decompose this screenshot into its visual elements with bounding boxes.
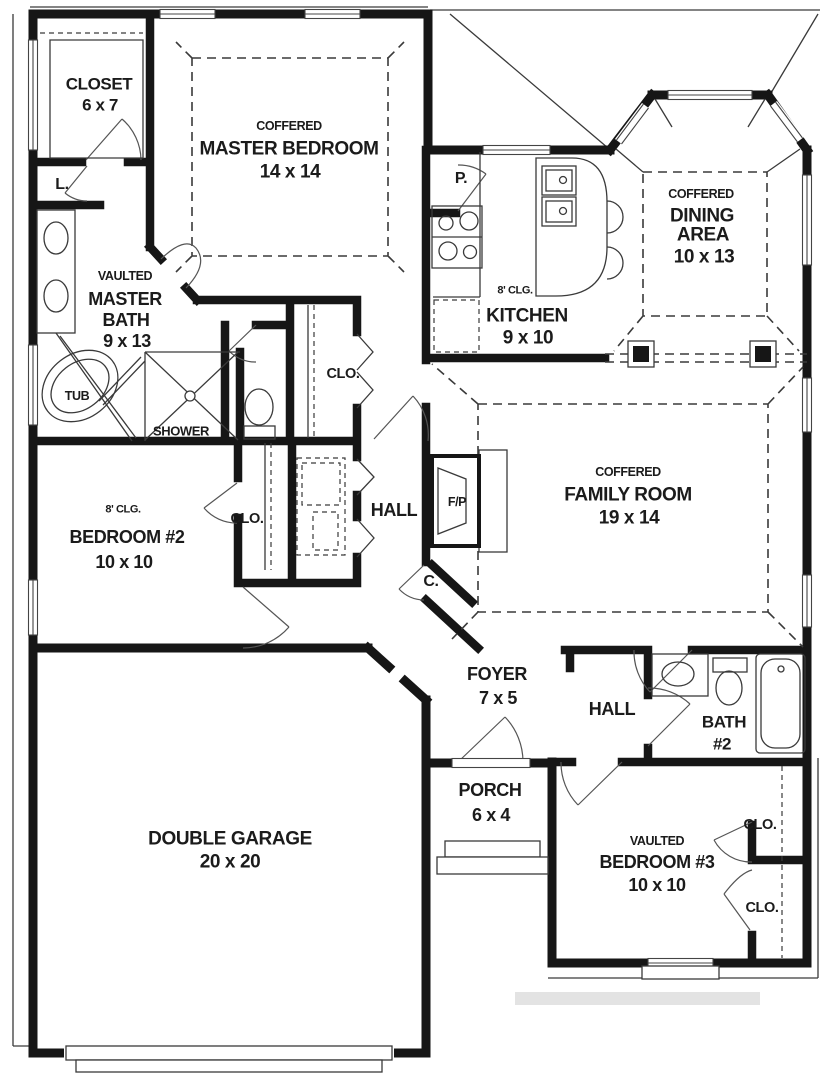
bath2-door (648, 688, 690, 746)
label-pantry: P. (455, 171, 467, 187)
label-bedroom3-ceiling: VAULTED (630, 835, 684, 848)
kitchen-island-icon (536, 158, 623, 296)
label-garage-name: DOUBLE GARAGE (148, 830, 312, 849)
colonnade (605, 341, 807, 367)
label-clo-bedroom3-top: CLO. (743, 818, 776, 833)
label-bath2-line1: BATH (702, 714, 746, 731)
front-door-swing (458, 717, 523, 762)
label-master-bedroom-name: MASTER BEDROOM (199, 140, 378, 159)
bar-stools (607, 201, 623, 279)
label-closet-dims: 6 x 7 (82, 97, 118, 114)
label-bedroom2-ceiling: 8' CLG. (105, 505, 140, 516)
label-hall-right: HALL (589, 700, 635, 718)
label-bath2-line2: #2 (713, 736, 731, 753)
label-porch-name: PORCH (458, 781, 521, 799)
label-bedroom2-name: BEDROOM #2 (69, 528, 184, 546)
bay-window (617, 102, 803, 144)
label-closet-name: CLOSET (66, 76, 133, 93)
label-bedroom2-dims: 10 x 10 (95, 553, 152, 571)
master-double-door (161, 244, 201, 288)
label-bedroom3-name: BEDROOM #3 (599, 853, 714, 871)
label-linen: L. (55, 177, 68, 193)
label-dining-dims: 10 x 13 (674, 248, 735, 267)
label-kitchen-ceiling: 8' CLG. (497, 286, 532, 297)
front-door-opening (452, 759, 530, 768)
label-foyer-name: FOYER (467, 665, 527, 683)
label-kitchen-name: KITCHEN (486, 307, 568, 326)
label-foyer-dims: 7 x 5 (479, 689, 517, 707)
floor-plan: CLOSET 6 x 7 COFFERED MASTER BEDROOM 14 … (0, 0, 825, 1083)
coat-closet-door (399, 565, 424, 600)
master-vanity-icon (37, 210, 75, 333)
bedroom3-door (561, 762, 622, 805)
label-bedroom3-dims: 10 x 10 (628, 876, 685, 894)
fireplace-icon (432, 450, 507, 552)
label-family-ceiling: COFFERED (595, 466, 661, 479)
label-hall-center: HALL (371, 501, 417, 519)
label-master-bedroom-ceiling: COFFERED (256, 120, 322, 133)
label-clo-bedroom2: CLO. (230, 512, 263, 527)
label-dining-ceiling: COFFERED (668, 188, 734, 201)
utility-outline (297, 458, 345, 555)
label-garage-dims: 20 x 20 (200, 853, 261, 872)
bath2-toilet-icon (713, 658, 747, 705)
label-fireplace: F/P (448, 496, 466, 509)
bedroom2-door (243, 587, 289, 648)
label-master-bath-ceiling: VAULTED (98, 270, 152, 283)
label-family-name: FAMILY ROOM (564, 486, 692, 505)
label-master-bath-line2: BATH (102, 311, 149, 329)
label-shower: SHOWER (153, 425, 209, 438)
label-master-bedroom-dims: 14 x 14 (260, 163, 321, 182)
label-master-bath-dims: 9 x 13 (103, 332, 151, 350)
label-tub: TUB (65, 390, 90, 403)
label-family-dims: 19 x 14 (599, 509, 660, 528)
porch-steps (437, 841, 548, 874)
window-sill (642, 966, 719, 979)
label-clo-bedroom3-bottom: CLO. (745, 901, 778, 916)
ceiling-dash-outlines (176, 42, 803, 647)
bath2-vanity-icon (652, 654, 708, 696)
label-dining-line2: AREA (677, 226, 729, 245)
bathtub-icon (756, 654, 805, 753)
label-dining-line1: DINING (670, 207, 734, 226)
toilet-icon (244, 389, 275, 439)
label-kitchen-dims: 9 x 10 (503, 329, 553, 348)
refrigerator-outline (434, 300, 479, 352)
watermark-bar (515, 992, 760, 1005)
label-clo-hall: CLO. (326, 367, 359, 382)
label-porch-dims: 6 x 4 (472, 806, 510, 824)
label-coat: C. (423, 574, 438, 590)
garage-door (64, 1046, 394, 1072)
label-master-bath-line1: MASTER (88, 290, 162, 308)
